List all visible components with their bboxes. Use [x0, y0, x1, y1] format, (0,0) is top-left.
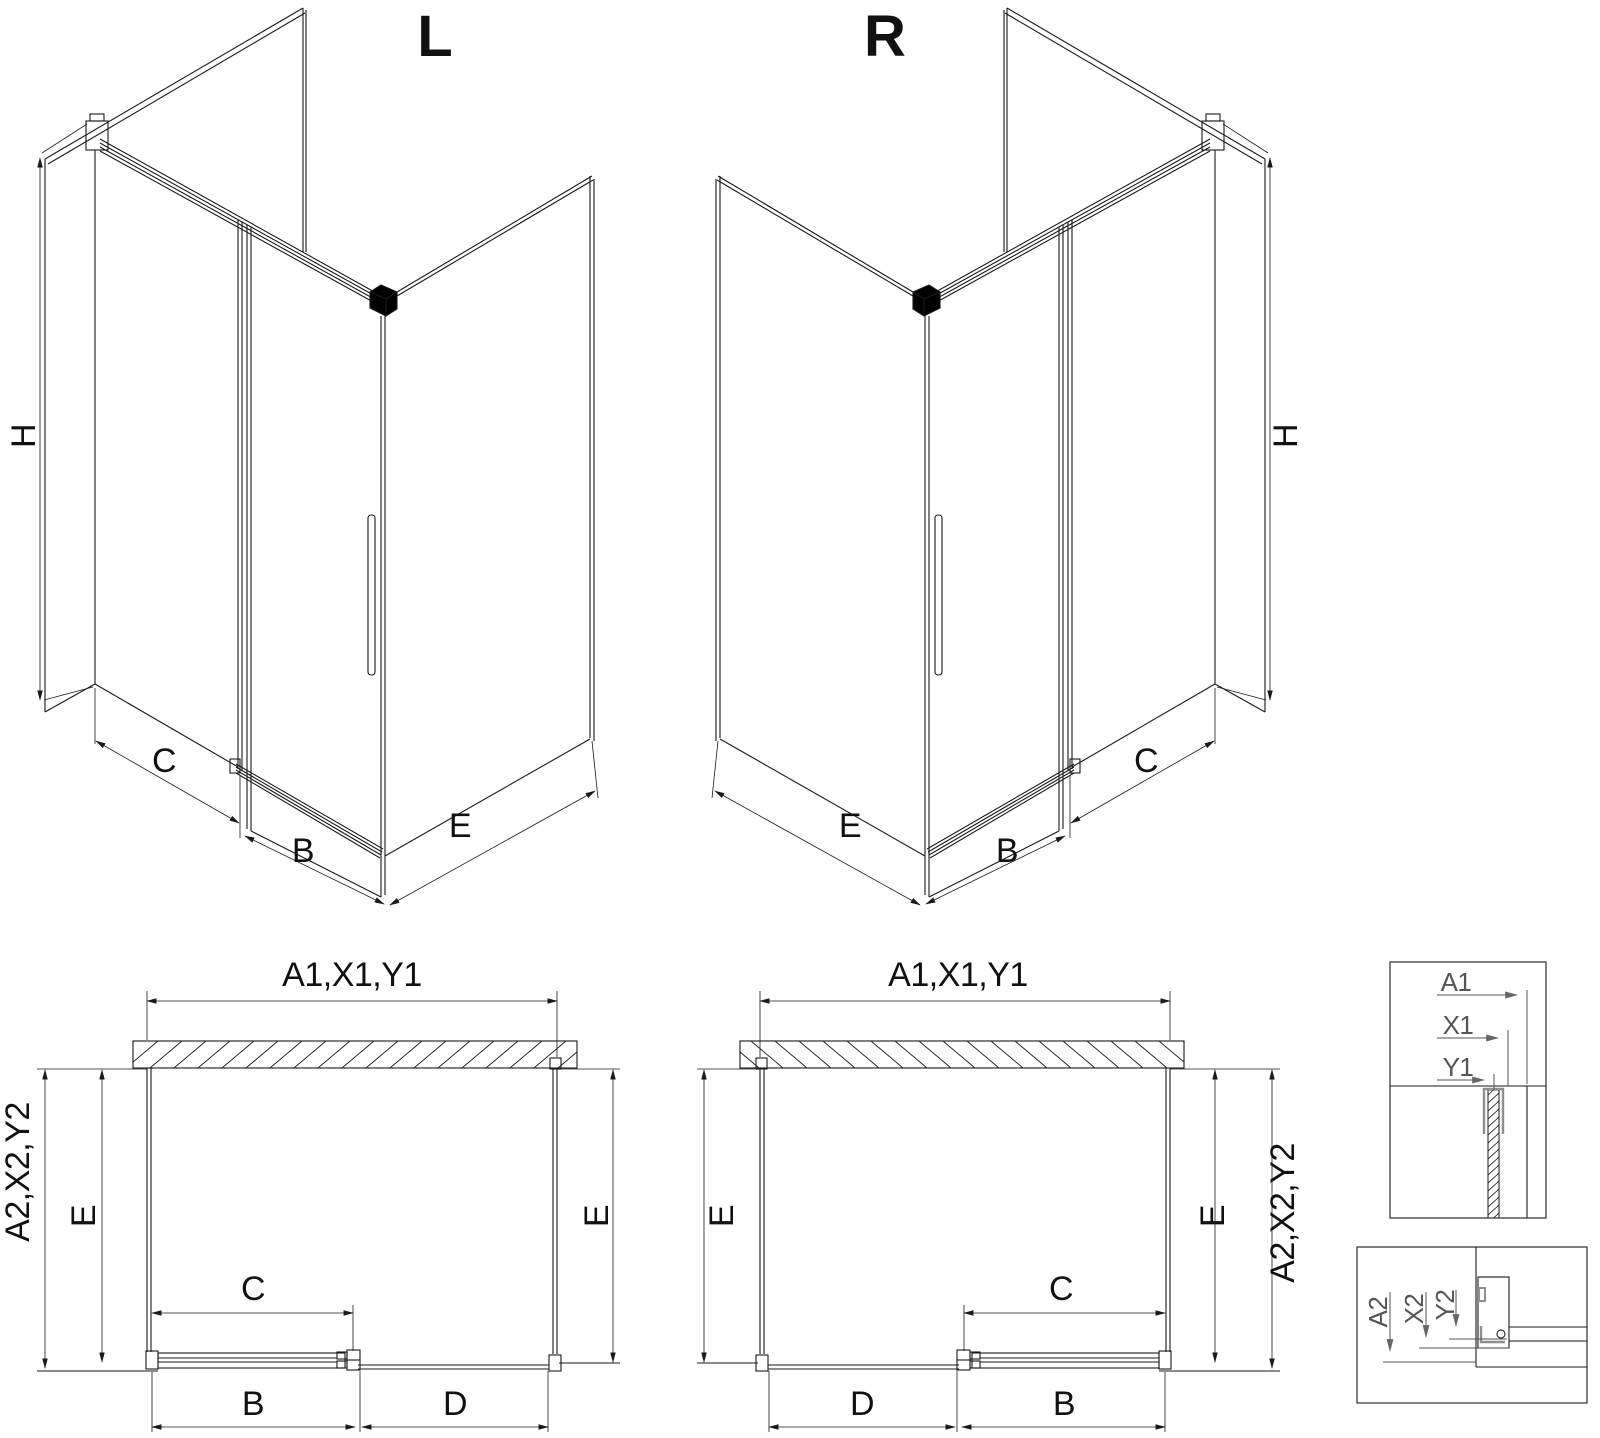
dim-label-e-iso-left: E: [449, 809, 471, 843]
dim-label-e-left-plan-right: E: [705, 1205, 739, 1227]
dim-label-e-iso-right: E: [839, 809, 861, 843]
detail-label-x2: X2: [1401, 1294, 1427, 1325]
detail-label-y1: Y1: [1443, 1054, 1474, 1080]
plan-view-right-geometry: [697, 991, 1280, 1432]
dim-label-c-iso-right: C: [1134, 744, 1158, 778]
technical-drawing-page: LHCBERHEBCA1,X1,Y1A2,X2,Y2EECBDA1,X1,Y1A…: [0, 0, 1600, 1438]
dim-label-e-right-plan-right: E: [1196, 1205, 1230, 1227]
dim-label-c-plan-right: C: [1049, 1272, 1073, 1306]
view-title-left: L: [417, 8, 452, 66]
dim-label-c-plan-left: C: [241, 1272, 265, 1306]
dim-label-b-plan-right: B: [1053, 1387, 1075, 1421]
detail-label-x1: X1: [1443, 1012, 1474, 1038]
detail-label-a1: A1: [1441, 969, 1472, 995]
dim-label-depth-plan-right: A2,X2,Y2: [1266, 1143, 1300, 1283]
dim-label-b-plan-left: B: [242, 1387, 264, 1421]
dim-label-d-plan-right: D: [850, 1387, 874, 1421]
dim-label-height-iso-left: H: [7, 424, 41, 448]
technical-drawing-canvas: [0, 0, 1600, 1438]
dim-label-b-iso-left: B: [292, 834, 314, 868]
dim-label-height-iso-right: H: [1269, 424, 1303, 448]
detail-label-a2: A2: [1365, 1297, 1391, 1328]
dim-label-width-plan-right: A1,X1,Y1: [888, 958, 1028, 992]
dim-label-width-plan-left: A1,X1,Y1: [282, 958, 422, 992]
dim-label-depth-plan-left: A2,X2,Y2: [1, 1102, 35, 1242]
detail-label-y2: Y2: [1432, 1290, 1458, 1321]
view-title-right: R: [864, 8, 906, 66]
dim-label-c-iso-left: C: [152, 744, 176, 778]
iso-view-left-geometry: [40, 8, 598, 905]
plan-view-left-geometry: [37, 991, 620, 1432]
dim-label-e-right-plan-left: E: [580, 1205, 614, 1227]
dim-label-d-plan-left: D: [443, 1387, 467, 1421]
dim-label-b-iso-right: B: [996, 834, 1018, 868]
iso-view-right-geometry: [712, 8, 1270, 905]
dim-label-e-left-plan-left: E: [67, 1205, 101, 1227]
